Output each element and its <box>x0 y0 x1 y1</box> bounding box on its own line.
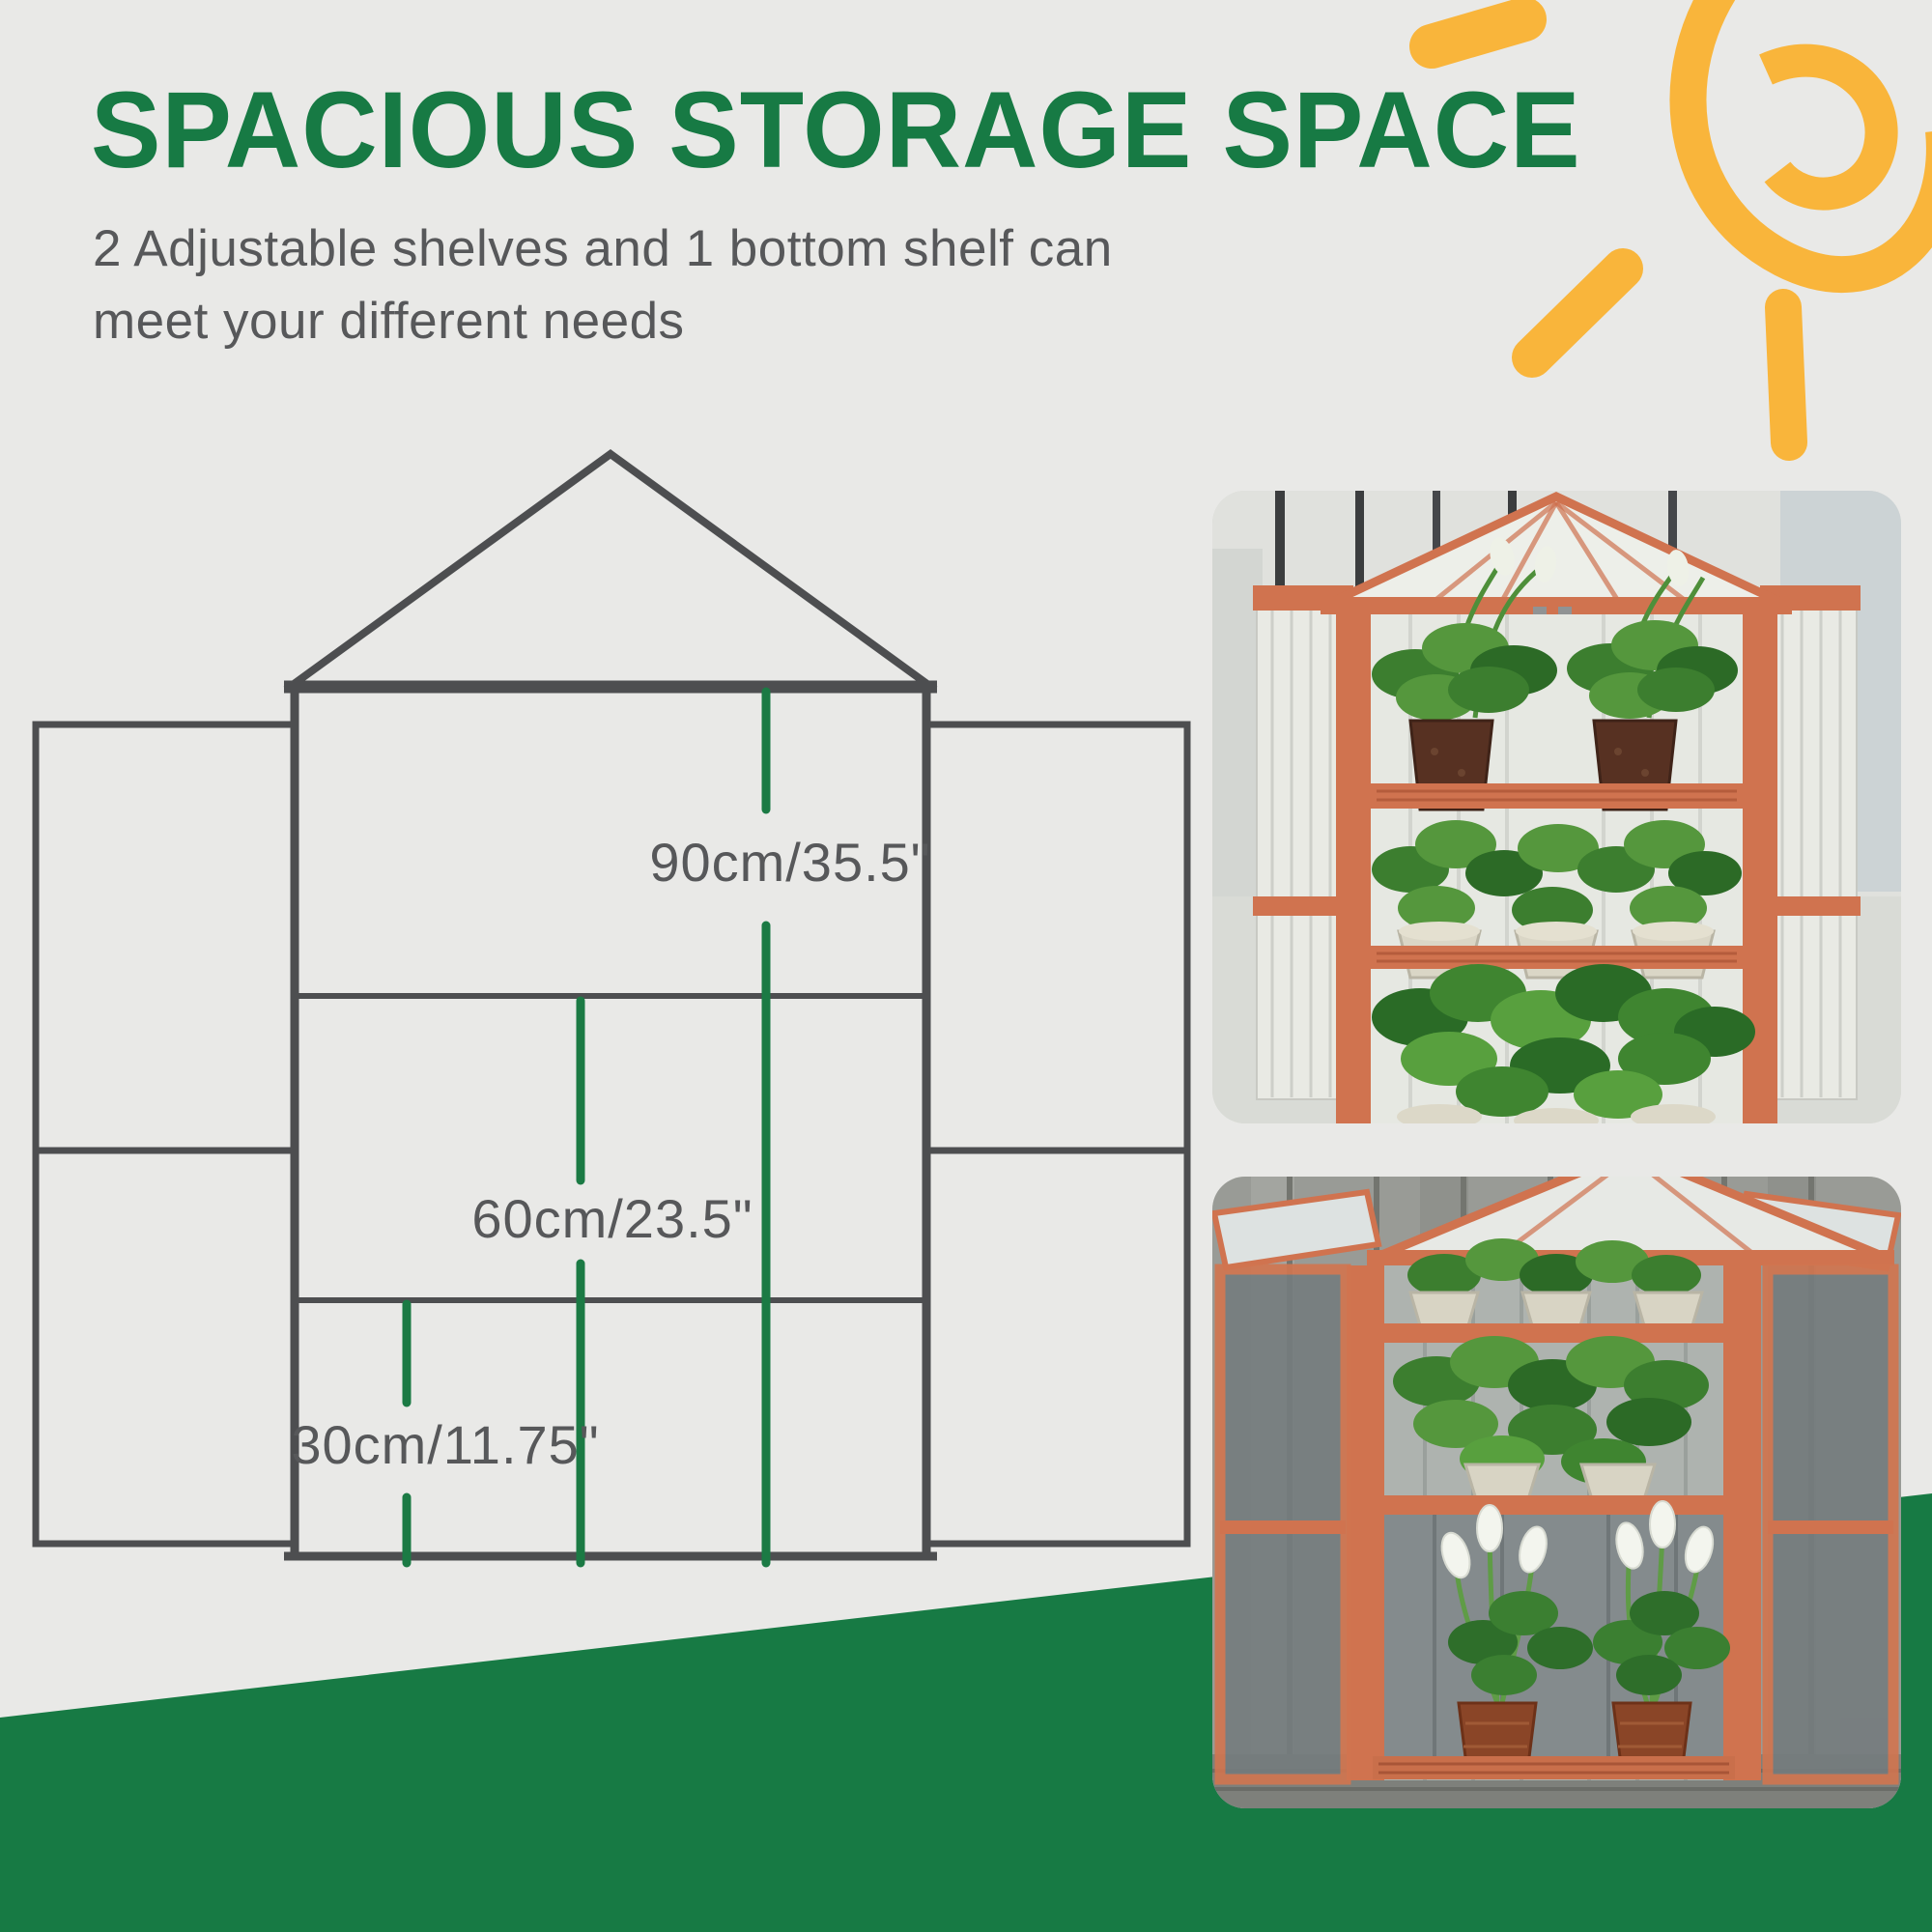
shelf-upper <box>1371 783 1743 809</box>
diagram-right-door <box>926 724 1187 1544</box>
product-feature-page: SPACIOUS STORAGE SPACE 2 Adjustable shel… <box>0 0 1932 1932</box>
photo-greenhouse-open <box>1212 1177 1901 1808</box>
sun-spiral <box>1688 0 1932 274</box>
sun-icon <box>1391 0 1932 483</box>
greenhouse-floor <box>1373 1756 1735 1779</box>
open-right-door <box>1768 1269 1893 1779</box>
greenhouse-dimension-diagram: 90cm/35.5" 60cm/23.5" 30cm/11.75" <box>0 0 1217 1642</box>
photo-greenhouse-closed <box>1212 491 1901 1123</box>
photo-greenhouse-open-art <box>1212 1177 1901 1808</box>
calla-lily-plants <box>1384 1501 1730 1773</box>
open-left-door <box>1220 1269 1346 1779</box>
diagram-roof <box>286 454 935 690</box>
dimension-label-90cm: 90cm/35.5" <box>649 832 930 893</box>
shelf-lower <box>1371 946 1743 969</box>
dimension-label-30cm: 30cm/11.75" <box>291 1414 599 1475</box>
dimension-label-60cm: 60cm/23.5" <box>471 1188 753 1249</box>
photo-greenhouse-closed-art <box>1212 491 1901 1123</box>
diagram-left-door <box>36 724 295 1544</box>
